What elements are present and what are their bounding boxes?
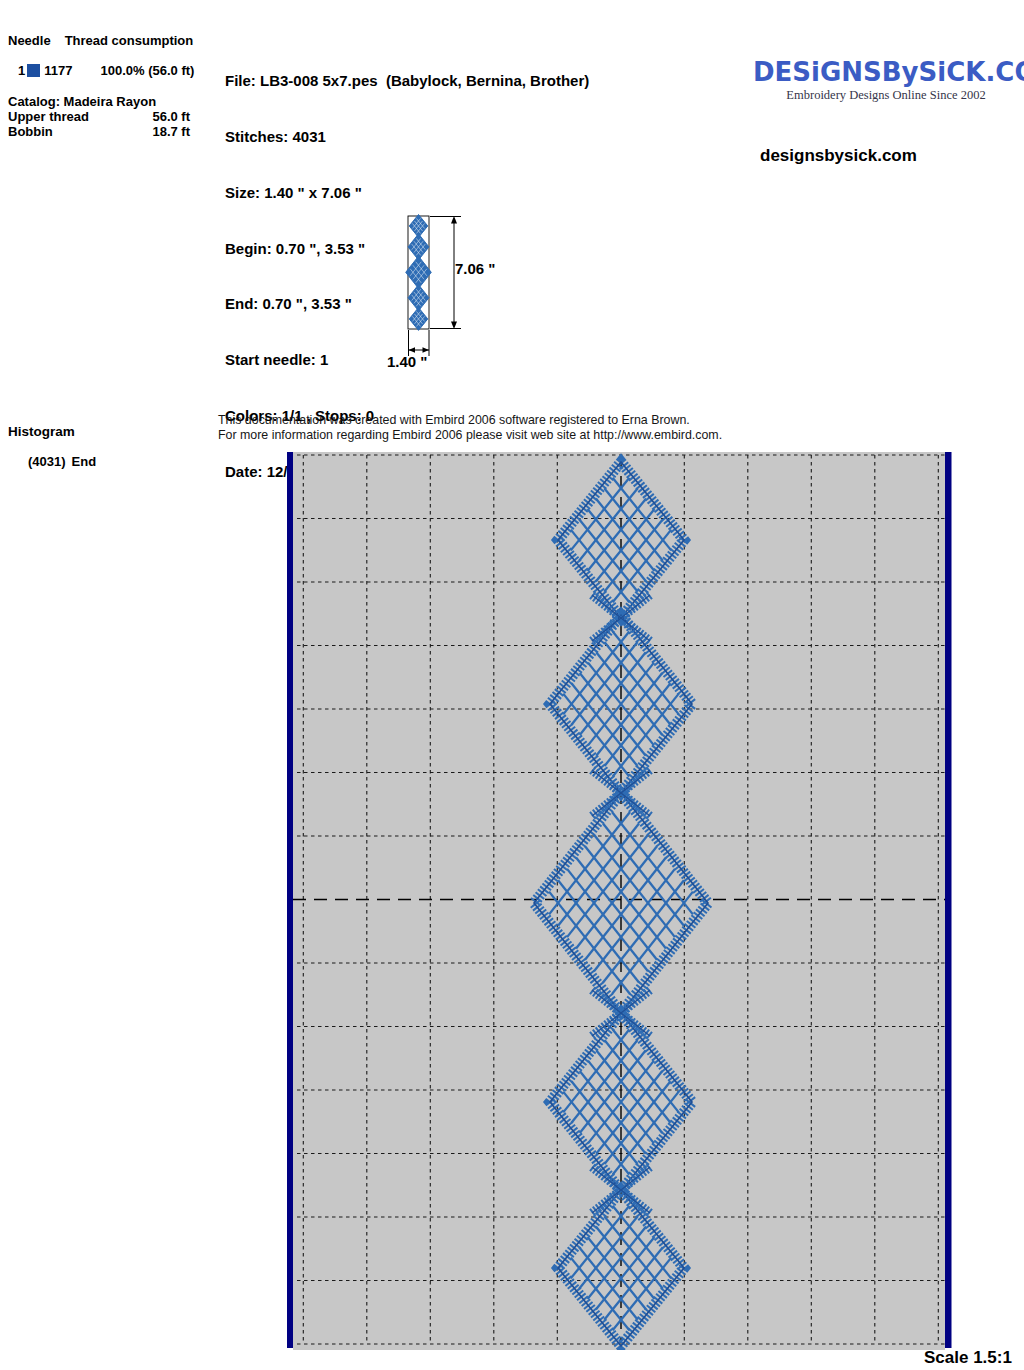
upper-thread-label: Upper thread	[8, 109, 89, 124]
size-line: Size: 1.40 " x 7.06 "	[225, 184, 589, 203]
thread-consumption-value: 100.0% (56.0 ft)	[100, 63, 194, 78]
width-dimension-label: 1.40 "	[387, 353, 427, 370]
brand-tagline: Embroidery Designs Online Since 2002	[753, 88, 1019, 103]
thread-color-swatch	[27, 64, 40, 77]
histogram-entry: (4031)End	[28, 454, 96, 469]
design-preview-thumbnail	[390, 210, 500, 375]
embird-note-line1: This documentation was created with Embi…	[218, 413, 722, 428]
designsbysick-logo: DESiGNSBySiCK.COM	[753, 57, 1019, 87]
thread-table-header: NeedleThread consumption	[8, 33, 193, 48]
histogram-end-label: End	[72, 454, 97, 469]
needle-number: 1	[18, 63, 25, 78]
height-dimension-label: 7.06 "	[455, 260, 495, 277]
thread-row: 1 1177 100.0% (56.0 ft)	[18, 63, 194, 78]
histogram-stitch-count: (4031)	[28, 454, 66, 469]
brand-website: designsbysick.com	[760, 146, 917, 166]
thread-code: 1177	[44, 63, 72, 78]
consumption-column-header: Thread consumption	[65, 33, 194, 48]
bobbin-value: 18.7 ft	[152, 124, 190, 139]
needle-column-header: Needle	[8, 33, 51, 48]
catalog-line: Catalog: Madeira Rayon	[8, 94, 156, 109]
upper-thread-row: Upper thread 56.0 ft	[8, 109, 190, 124]
embroidery-design-canvas	[287, 452, 952, 1350]
embird-note-line2: For more information regarding Embird 20…	[218, 428, 722, 443]
file-name-line: File: LB3-008 5x7.pes (Babylock, Bernina…	[225, 72, 589, 91]
embird-note: This documentation was created with Embi…	[218, 413, 722, 442]
histogram-title: Histogram	[8, 424, 75, 439]
upper-thread-value: 56.0 ft	[152, 109, 190, 124]
bobbin-row: Bobbin 18.7 ft	[8, 124, 190, 139]
scale-label: Scale 1.5:1	[924, 1348, 1012, 1368]
bobbin-label: Bobbin	[8, 124, 53, 139]
stitches-line: Stitches: 4031	[225, 128, 589, 147]
